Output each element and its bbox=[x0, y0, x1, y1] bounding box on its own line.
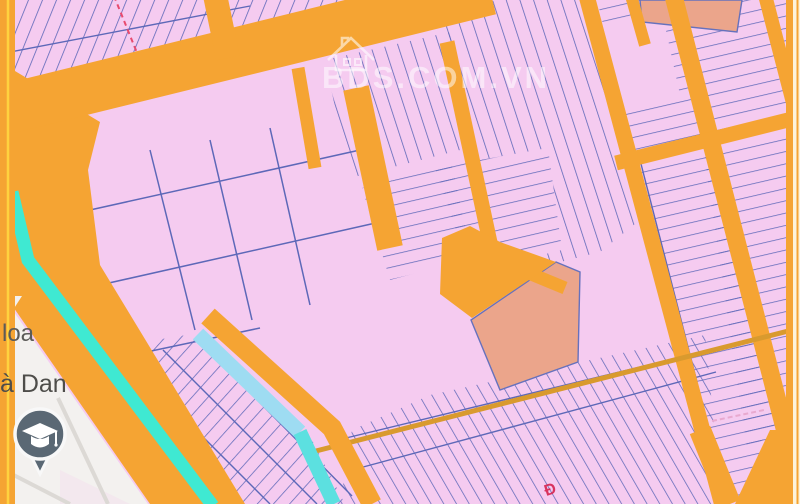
watermark-text: BDS.COM.VN bbox=[322, 60, 550, 95]
left-label-lower: à Dan bbox=[0, 370, 67, 398]
left-edge-boundary bbox=[0, 0, 15, 504]
left-label-upper: loa bbox=[2, 320, 35, 347]
right-edge-boundary bbox=[786, 0, 800, 504]
cadastral-planning-map[interactable]: loa à Dan Đ BDS.COM.VN bbox=[0, 0, 800, 504]
map-canvas[interactable]: loa à Dan Đ BDS.COM.VN bbox=[0, 0, 800, 504]
